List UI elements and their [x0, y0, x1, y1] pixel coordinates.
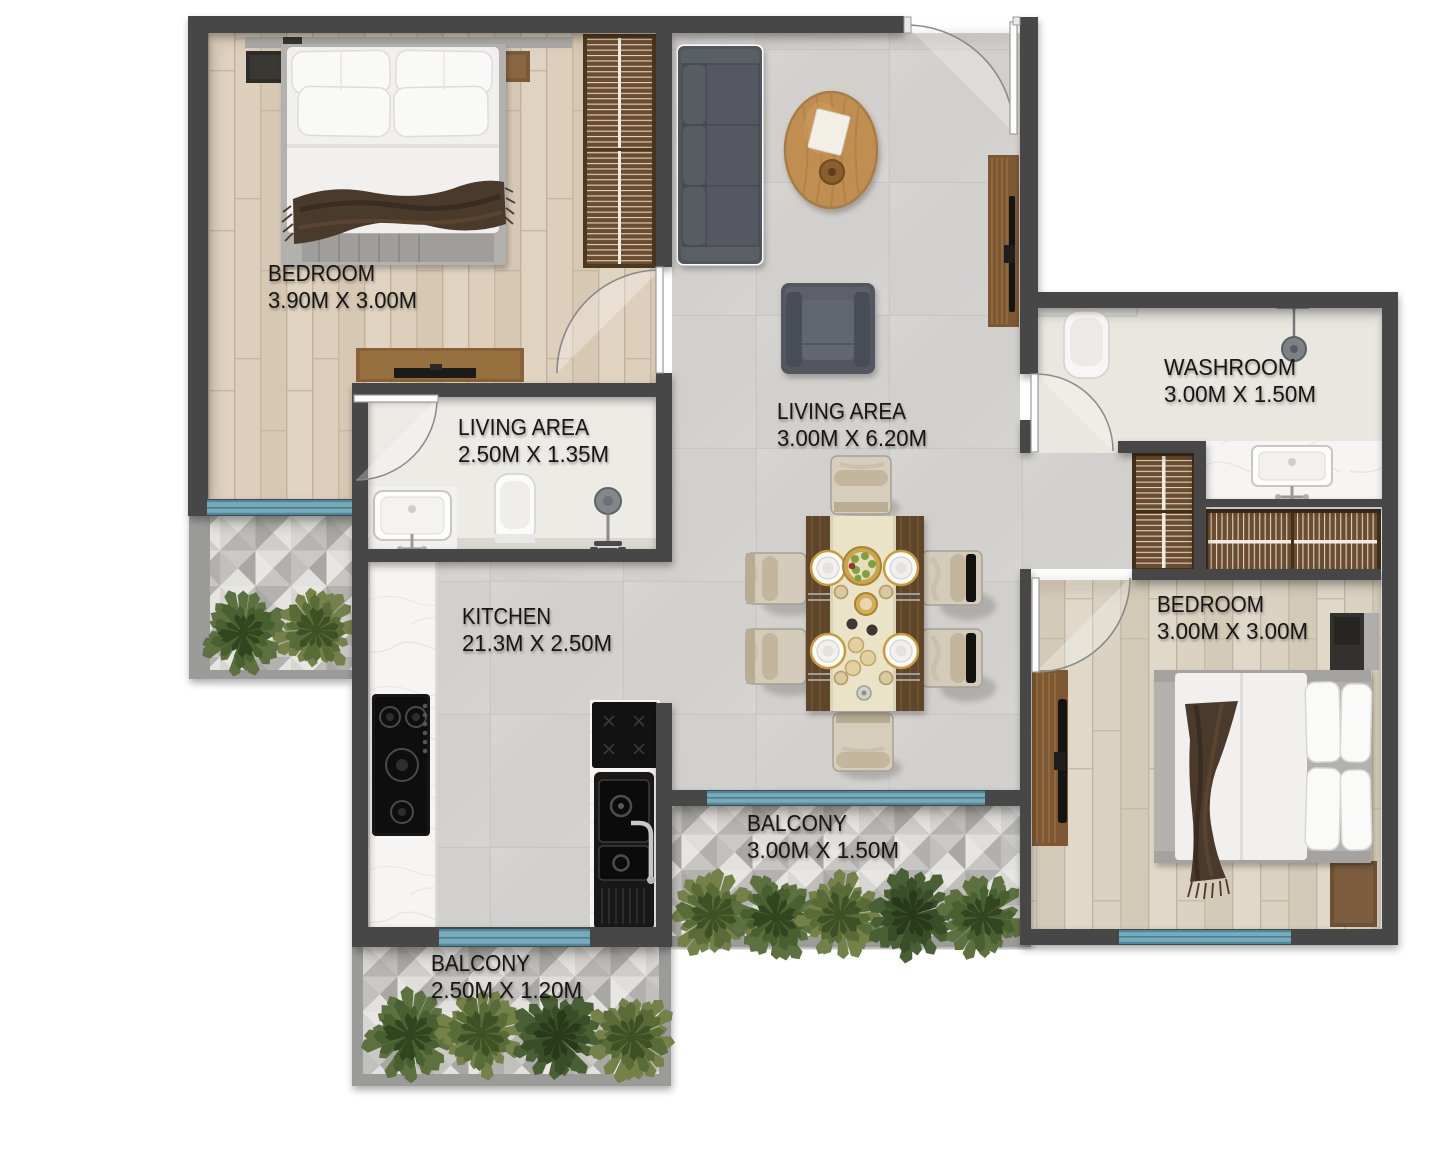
svg-text:KITCHEN: KITCHEN: [462, 603, 551, 629]
svg-text:3.00M X 1.50M: 3.00M X 1.50M: [1164, 381, 1316, 407]
svg-text:LIVING AREA: LIVING AREA: [458, 414, 589, 440]
svg-text:21.3M X 2.50M: 21.3M X 2.50M: [462, 630, 612, 656]
svg-text:LIVING AREA: LIVING AREA: [777, 398, 906, 424]
svg-text:BALCONY: BALCONY: [747, 810, 847, 836]
svg-text:BALCONY: BALCONY: [431, 950, 530, 976]
svg-text:3.00M X 3.00M: 3.00M X 3.00M: [1157, 618, 1308, 644]
svg-text:2.50M X 1.20M: 2.50M X 1.20M: [431, 977, 582, 1003]
svg-text:3.90M X 3.00M: 3.90M X 3.00M: [268, 287, 417, 313]
svg-text:BEDROOM: BEDROOM: [1157, 591, 1264, 617]
svg-text:WASHROOM: WASHROOM: [1164, 354, 1296, 380]
svg-text:BEDROOM: BEDROOM: [268, 260, 375, 286]
svg-text:2.50M X 1.35M: 2.50M X 1.35M: [458, 441, 609, 467]
svg-text:3.00M X 6.20M: 3.00M X 6.20M: [777, 425, 927, 451]
svg-text:3.00M X 1.50M: 3.00M X 1.50M: [747, 837, 899, 863]
